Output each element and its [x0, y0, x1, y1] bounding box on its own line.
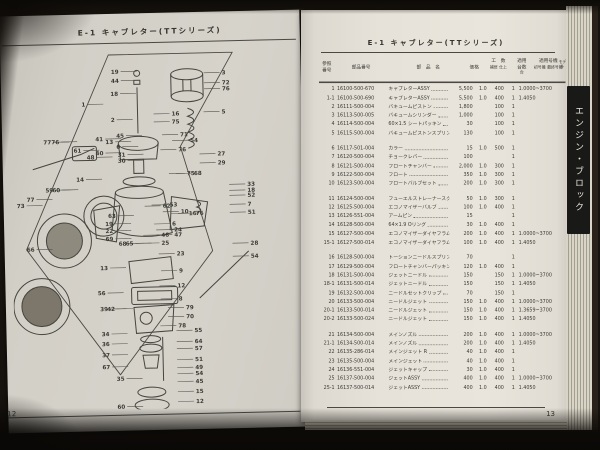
cell-labor: 1.0	[473, 163, 487, 168]
cell-part: 16132-500-004	[337, 290, 388, 295]
cell-ref: 10	[319, 181, 337, 186]
cell-price: 5,500	[449, 86, 472, 91]
cell-name: メインジェット R	[388, 348, 449, 355]
table-row: 18-116131-500-014ジェットニードル15015011.4050	[319, 278, 565, 287]
cell-serial: 1.0000~3700	[515, 86, 566, 91]
cell-ref: 1	[319, 86, 337, 91]
cell-apply: 400	[487, 332, 504, 337]
cell-qty: 1	[504, 281, 515, 286]
callout-number: 69	[106, 237, 114, 243]
cell-serial: 1.4050	[515, 281, 566, 286]
callout-number: 68	[194, 171, 202, 177]
cell-apply: 100	[487, 104, 504, 109]
cell-part: 16121-500-004	[337, 163, 388, 168]
cell-apply: 150	[487, 273, 504, 278]
right-page-number: 13	[546, 410, 555, 418]
cell-name: ジェットニードル	[388, 271, 449, 278]
callout-number: 54	[251, 254, 259, 260]
right-page: E-1 キャブレター(TTシリーズ) 参照 番号 部品番号 部 品 名 価格 工…	[301, 10, 567, 422]
callout-number: 76	[196, 211, 204, 217]
cell-apply: 400	[487, 317, 504, 322]
cell-price: 30	[449, 122, 472, 127]
table-row: 1416128-500-00464×1.9 Oリング301.04001	[319, 219, 565, 228]
callout-number: 23	[177, 251, 185, 257]
cell-labor: 1.0	[473, 308, 487, 313]
cell-name: フロート	[388, 170, 449, 177]
cell-name: メインジェット	[388, 357, 449, 364]
cell-qty: 1	[504, 255, 515, 260]
callout-number: 22	[105, 229, 113, 235]
cell-serial: 1.4050	[515, 95, 566, 100]
cell-labor: 1.0	[473, 205, 487, 210]
callout-number: 25	[161, 241, 169, 247]
cell-name: フロートバルブセット	[388, 179, 449, 186]
cell-ref: 20-2	[319, 317, 337, 322]
table-row: 916122-500-004フロート3501.03001	[319, 169, 565, 178]
cell-name: ニードルジェット	[388, 297, 449, 304]
cell-ref: 18-1	[319, 281, 337, 286]
callout-number: 29	[218, 160, 226, 166]
callout-number: 56	[98, 291, 106, 297]
cell-price: 100	[449, 240, 472, 245]
table-row: 316113-500-005バキュームシリンダー1,0001001	[319, 110, 565, 119]
cell-apply: 400	[487, 240, 504, 245]
cell-qty: 1	[504, 86, 515, 91]
cell-serial: 1.0000~3700	[515, 273, 566, 278]
callout-number: 75	[172, 119, 180, 125]
cell-qty: 1	[504, 213, 515, 218]
cell-part: 16123-500-004	[337, 181, 388, 186]
callout-number: 12	[177, 283, 185, 289]
cell-ref: 3	[319, 113, 337, 118]
callout-number: 60	[117, 405, 125, 411]
table-row: 20-216133-500-024ニードルジェット1501.040011.405…	[319, 313, 565, 322]
callout-number: 27	[217, 151, 225, 157]
callout-number: 16	[172, 111, 180, 117]
cell-name: 60×1.5 シートパッキン	[388, 120, 449, 127]
cell-labor: 1.0	[473, 358, 487, 363]
callout-number: 76	[51, 140, 59, 146]
callout-number: 13	[105, 140, 113, 146]
cell-price: 120	[449, 264, 472, 269]
callout-number: 60	[52, 188, 60, 194]
cell-apply: 300	[487, 163, 504, 168]
cell-price: 40	[449, 349, 472, 354]
cell-price: 15	[449, 146, 472, 151]
cell-part: 16129-500-004	[337, 264, 388, 269]
cell-name: バキュームピストンスプリング	[388, 129, 449, 136]
table-row: 1916132-500-004ニードルセットクリップ701501	[319, 287, 565, 296]
callout-number: 57	[195, 346, 203, 352]
cell-labor: 1.0	[473, 299, 487, 304]
cell-name: ジェットASSY	[388, 374, 449, 381]
table-row: 1516127-500-004エコノマイザーダイヤフラム2001.040011.…	[319, 228, 565, 237]
cell-part: 16115-500-004	[337, 130, 388, 135]
cell-ref: 12	[319, 205, 337, 210]
cell-part: 16128-500-004	[337, 222, 388, 227]
callout-number: 37	[102, 353, 110, 359]
cell-apply: 500	[487, 146, 504, 151]
cell-name: メインノズル	[388, 339, 449, 346]
left-page-bottom-rule	[8, 411, 300, 419]
cell-ref: 16	[319, 255, 337, 260]
cell-apply: 400	[487, 299, 504, 304]
cell-part: 16125-500-004	[337, 205, 388, 210]
table-row: 2516137-500-004ジェットASSY4001.040011.0000~…	[319, 372, 565, 381]
cell-qty: 1	[504, 222, 515, 227]
table-row: 2416136-551-004ジェットキャップ301.04001	[319, 364, 565, 373]
cell-qty: 1	[504, 104, 515, 109]
cell-apply: 300	[487, 172, 504, 177]
callout-number: 66	[27, 248, 35, 254]
cell-name: フロートチャンバー	[388, 162, 449, 169]
cell-qty: 1	[504, 349, 515, 354]
cell-apply: 400	[487, 308, 504, 313]
cell-name: ニードルジェット	[388, 306, 449, 313]
cell-name: ジェットASSY	[388, 383, 449, 390]
callout-number: 35	[117, 377, 125, 383]
col-part: 部品番号	[336, 64, 386, 70]
diagram-parts	[9, 67, 253, 412]
table-row: 816121-500-004フロートチャンバー2,0001.03001	[319, 160, 565, 169]
cell-name: キャブレターASSY	[388, 85, 449, 92]
cell-labor: 1.0	[473, 196, 487, 201]
cell-name: バキュームピストン	[388, 102, 449, 109]
cell-serial: 1.3659~3700	[515, 308, 566, 313]
cell-serial: 1.4050	[515, 385, 566, 390]
cell-part: 16124-500-004	[337, 196, 388, 201]
diagram-envelope	[22, 52, 239, 377]
cell-labor: 1.0	[473, 340, 487, 345]
cell-price: 400	[449, 385, 472, 390]
cell-price: 200	[449, 340, 472, 345]
cell-labor: 1.0	[473, 349, 487, 354]
cell-name: フロートチャンバーパッキン	[388, 262, 449, 269]
callout-number: 55	[194, 328, 202, 334]
callout-number: 61	[74, 149, 82, 155]
cell-apply: 400	[487, 340, 504, 345]
cell-labor: 1.0	[473, 385, 487, 390]
cell-ref: 22	[319, 349, 337, 354]
cell-ref: 20	[319, 299, 337, 304]
callout-number: 36	[102, 342, 110, 348]
cell-name: エコノマイザーダイヤフラム	[388, 238, 449, 245]
cell-price: 400	[449, 376, 472, 381]
cell-qty: 1	[504, 205, 515, 210]
cell-apply: 400	[487, 264, 504, 269]
cell-part: 16134-500-004	[337, 332, 388, 337]
cell-apply: 400	[487, 222, 504, 227]
callout-number: 15	[196, 389, 204, 395]
cell-serial: 1.4050	[515, 240, 566, 245]
left-page-title: E-1 キャブレター(TTシリーズ)	[0, 23, 300, 41]
col-apply: 適用 台数 台	[514, 58, 530, 76]
callout-number: 42	[107, 307, 115, 313]
cell-part: 16114-500-004	[337, 122, 388, 127]
left-page: E-1 キャブレター(TTシリーズ)	[0, 10, 309, 434]
callout-number: 34	[102, 332, 110, 338]
cell-apply: 400	[487, 385, 504, 390]
cell-part: 16133-500-014	[337, 308, 388, 313]
col-labor: 工 数 補修 仕上	[484, 58, 512, 70]
cell-price: 50	[449, 196, 472, 201]
cell-price: 150	[449, 273, 472, 278]
cell-part: 16137-500-014	[337, 385, 388, 390]
table-row: 1616128-500-004トーションニードルスプリング701	[319, 252, 565, 261]
table-row: 1316126-551-004アームピン151	[319, 210, 565, 219]
cell-price: 150	[449, 308, 472, 313]
cell-part: 16126-551-004	[337, 213, 388, 218]
callout-number: 46	[161, 233, 169, 239]
col-price: 価格	[464, 64, 484, 70]
cell-price: 70	[449, 290, 472, 295]
callout-number: 44	[111, 79, 119, 85]
callout-number: 51	[195, 357, 203, 363]
cell-part: 16120-500-004	[337, 154, 388, 159]
callout-number: 76	[178, 147, 186, 153]
callout-number: 70	[186, 314, 194, 320]
cell-qty: 1	[504, 122, 515, 127]
table-row: 116100-500-670キャブレターASSY5,5001.040011.00…	[319, 83, 565, 92]
cell-qty: 1	[504, 113, 515, 118]
cell-labor: 1.0	[473, 264, 487, 269]
cell-apply: 100	[487, 122, 504, 127]
cell-ref: 15	[319, 231, 337, 236]
page-edge-stack-bottom	[305, 420, 567, 430]
callout-number: 52	[247, 193, 255, 199]
cell-apply: 300	[487, 181, 504, 186]
cell-labor: 1.0	[473, 332, 487, 337]
cell-name: フューエルストレーナースクリーン	[388, 194, 449, 201]
callout-number: 19	[105, 222, 113, 228]
cell-price: 30	[449, 222, 472, 227]
cell-qty: 1	[504, 130, 515, 135]
cell-part: 16133-500-004	[337, 299, 388, 304]
callout-number: 48	[87, 155, 95, 161]
cell-part: 16135-286-014	[337, 349, 388, 354]
cell-price: 1,000	[449, 113, 472, 118]
callout-number: 65	[126, 241, 134, 247]
table-row: 1216125-500-004エコノマイザーバルブ1001.04001	[319, 201, 565, 210]
parts-table: 参照 番号 部品番号 部 品 名 価格 工 数 補修 仕上 適用 台数 台	[319, 55, 565, 390]
cell-ref: 18	[319, 273, 337, 278]
callout-number: 47	[174, 232, 182, 238]
cell-qty: 1	[504, 332, 515, 337]
callout-number: 13	[100, 266, 108, 272]
cell-part: 16100-500-670	[337, 86, 388, 91]
cell-qty: 1	[504, 154, 515, 159]
cell-qty: 1	[504, 376, 515, 381]
callout-number: 64	[195, 339, 203, 345]
cell-part: 16131-500-004	[337, 273, 388, 278]
cell-part: 16136-551-004	[337, 367, 388, 372]
cell-part: 16122-500-004	[337, 172, 388, 177]
cell-ref: 23	[319, 358, 337, 363]
callout-number: 79	[186, 305, 194, 311]
cell-ref: 2	[319, 104, 337, 109]
cell-apply: 400	[487, 367, 504, 372]
cell-name: 64×1.9 Oリング	[388, 221, 449, 228]
cell-price: 5,500	[449, 95, 472, 100]
cell-name: メインノズル	[388, 330, 449, 337]
cell-price: 130	[449, 130, 472, 135]
cell-price: 40	[449, 358, 472, 363]
cell-part: 16100-500-690	[337, 95, 388, 100]
cell-apply: 400	[487, 205, 504, 210]
cell-apply: 100	[487, 130, 504, 135]
table-row: 216111-500-004バキュームピストン1,8001001	[319, 101, 565, 110]
callout-number: 54	[195, 371, 203, 377]
cell-price: 30	[449, 367, 472, 372]
cell-apply: 400	[487, 349, 504, 354]
callout-number: 12	[196, 399, 204, 405]
cell-name: ジェットニードル	[388, 280, 449, 287]
cell-apply: 300	[487, 196, 504, 201]
cell-part: 16128-500-004	[337, 255, 388, 260]
cell-part: 16137-500-004	[337, 376, 388, 381]
callout-number: 41	[95, 137, 103, 143]
callout-number: 40	[96, 151, 104, 157]
table-row: 2116134-500-004メインノズル2001.040011.0000~37…	[319, 328, 565, 337]
cell-qty: 1	[504, 273, 515, 278]
cell-ref: 4	[319, 122, 337, 127]
carburetor-exploded-diagram: 1944183727651216754541136405471763130777…	[8, 44, 304, 412]
cell-qty: 1	[504, 264, 515, 269]
cell-qty: 1	[504, 317, 515, 322]
table-row: 2316135-500-004メインジェット401.04001	[319, 355, 565, 364]
cell-labor: 1.0	[473, 367, 487, 372]
cell-labor: 1.0	[473, 181, 487, 186]
cell-ref: 20-1	[319, 308, 337, 313]
cell-labor: 1.0	[473, 376, 487, 381]
table-row: 1-116100-500-690キャブレターASSY5,5001.040011.…	[319, 92, 565, 101]
callout-number: 7	[248, 202, 252, 208]
col-name: 部 品 名	[393, 64, 463, 70]
cell-price: 15	[449, 213, 472, 218]
cell-qty: 1	[504, 181, 515, 186]
callout-number: 10	[181, 209, 189, 215]
table-row: 2016133-500-004ニードルジェット1501.040011.0000~…	[319, 296, 565, 305]
right-page-title-rule	[321, 52, 555, 53]
cell-serial: 1.0000~3700	[515, 376, 566, 381]
cell-qty: 1	[504, 308, 515, 313]
table-row: 716120-500-004チョークレバー1001	[319, 151, 565, 160]
cell-name: トーションニードルスプリング	[388, 253, 449, 260]
left-page-number: 12	[7, 410, 16, 418]
cell-price: 150	[449, 281, 472, 286]
table-row: 1016123-500-004フロートバルブセット2001.03001	[319, 177, 565, 186]
table-row: 1716129-500-004フロートチャンバーパッキン1201.04001	[319, 260, 565, 269]
cell-part: 16134-500-014	[337, 340, 388, 345]
cell-apply: 400	[487, 95, 504, 100]
cell-apply: 400	[487, 231, 504, 236]
cell-part: 16135-500-004	[337, 358, 388, 363]
cell-qty: 1	[504, 385, 515, 390]
callout-number: 28	[250, 241, 258, 247]
cell-ref: 1-1	[319, 95, 337, 100]
cell-name: ニードルジェット	[388, 315, 449, 322]
cell-ref: 5	[319, 130, 337, 135]
cell-qty: 1	[504, 163, 515, 168]
callout-number: 1	[81, 103, 85, 109]
cell-apply: 150	[487, 290, 504, 295]
callout-number: 45	[196, 379, 204, 385]
cell-labor: 1.0	[473, 86, 487, 91]
cell-ref: 13	[319, 213, 337, 218]
table-row: 1816131-500-004ジェットニードル15015011.0000~370…	[319, 269, 565, 278]
cell-apply: 400	[487, 376, 504, 381]
cell-qty: 1	[504, 340, 515, 345]
cell-qty: 1	[504, 95, 515, 100]
cell-apply: 100	[487, 113, 504, 118]
cell-labor: 1.0	[473, 222, 487, 227]
cell-part: 16117-501-004	[337, 146, 388, 151]
cell-labor: 1.0	[473, 317, 487, 322]
cell-name: ニードルセットクリップ	[388, 289, 449, 296]
callout-number: 67	[102, 365, 110, 371]
cell-serial: 1.0000~3700	[515, 231, 566, 236]
callout-number: 77	[43, 140, 51, 146]
cell-apply: 400	[487, 358, 504, 363]
callout-number: 78	[178, 323, 186, 329]
cell-serial: 1.4050	[515, 317, 566, 322]
book-photo: E-1 キャブレター(TTシリーズ)	[0, 0, 600, 450]
callout-number: 30	[118, 159, 126, 165]
cell-ref: 25-1	[319, 385, 337, 390]
table-row: 616117-501-004カラー151.05001	[319, 142, 565, 151]
cell-price: 100	[449, 205, 472, 210]
cell-ref: 25	[319, 376, 337, 381]
cell-apply: 150	[487, 281, 504, 286]
table-row: 15-116127-500-014エコノマイザーダイヤフラム1001.04001…	[319, 237, 565, 246]
cell-ref: 17	[319, 264, 337, 269]
table-row: 416114-500-00460×1.5 シートパッキン301001	[319, 118, 565, 127]
callout-number: 18	[110, 92, 118, 98]
cell-ref: 24	[319, 367, 337, 372]
cell-part: 16113-500-005	[337, 113, 388, 118]
cell-ref: 6	[319, 146, 337, 151]
cell-qty: 1	[504, 172, 515, 177]
table-row: 20-116133-500-014ニードルジェット1501.040011.365…	[319, 304, 565, 313]
cell-qty: 1	[504, 290, 515, 295]
callout-number: 5	[221, 109, 225, 115]
cell-labor: 1.0	[473, 146, 487, 151]
cell-ref: 9	[319, 172, 337, 177]
callout-number: 19	[111, 70, 119, 76]
cell-name: キャブレターASSY	[388, 94, 449, 101]
callout-number: 9	[179, 268, 183, 274]
cell-price: 200	[449, 231, 472, 236]
cell-price: 150	[449, 317, 472, 322]
callout-number: 2	[111, 118, 115, 124]
cell-ref: 8	[319, 163, 337, 168]
cell-price: 150	[449, 299, 472, 304]
callout-number: 76	[222, 86, 230, 92]
col-ref: 参照 番号	[319, 61, 335, 73]
cell-ref: 21-1	[319, 340, 337, 345]
cell-ref: 21	[319, 332, 337, 337]
cell-part: 16111-500-004	[337, 104, 388, 109]
parts-table-header: 参照 番号 部品番号 部 品 名 価格 工 数 補修 仕上 適用 台数 台	[319, 55, 565, 83]
cell-serial: 1.4050	[515, 340, 566, 345]
cell-apply: 400	[487, 86, 504, 91]
cell-ref: 14	[319, 222, 337, 227]
table-row: 2216135-286-014メインジェット R401.04001	[319, 346, 565, 355]
callout-number: 54	[190, 138, 198, 144]
right-page-bottom-rule	[327, 407, 545, 408]
table-row: 25-116137-500-014ジェットASSY4001.040011.405…	[319, 381, 565, 390]
cell-name: カラー	[388, 144, 449, 151]
